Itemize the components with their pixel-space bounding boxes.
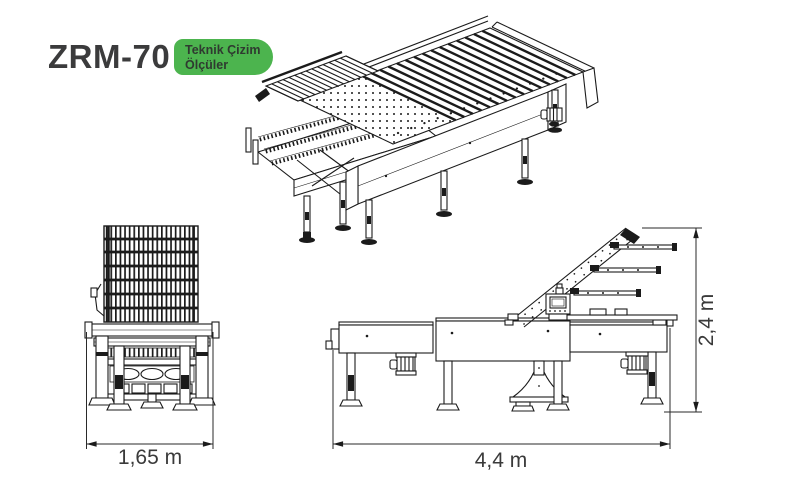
front-roller-stack xyxy=(91,226,198,322)
technical-drawing-canvas: 1,65 m xyxy=(0,0,800,495)
front-view: 1,65 m xyxy=(85,226,219,469)
side-arms xyxy=(560,242,677,320)
side-length-label: 4,4 m xyxy=(475,449,528,472)
side-view: 4,4 m 2,4 m xyxy=(326,228,718,472)
page: ZRM-70 Teknik Çizim Ölçüler xyxy=(0,0,800,495)
front-width-label: 1,65 m xyxy=(118,446,182,469)
side-height-label: 2,4 m xyxy=(695,294,718,347)
side-body xyxy=(326,318,673,361)
isometric-view xyxy=(246,16,598,245)
